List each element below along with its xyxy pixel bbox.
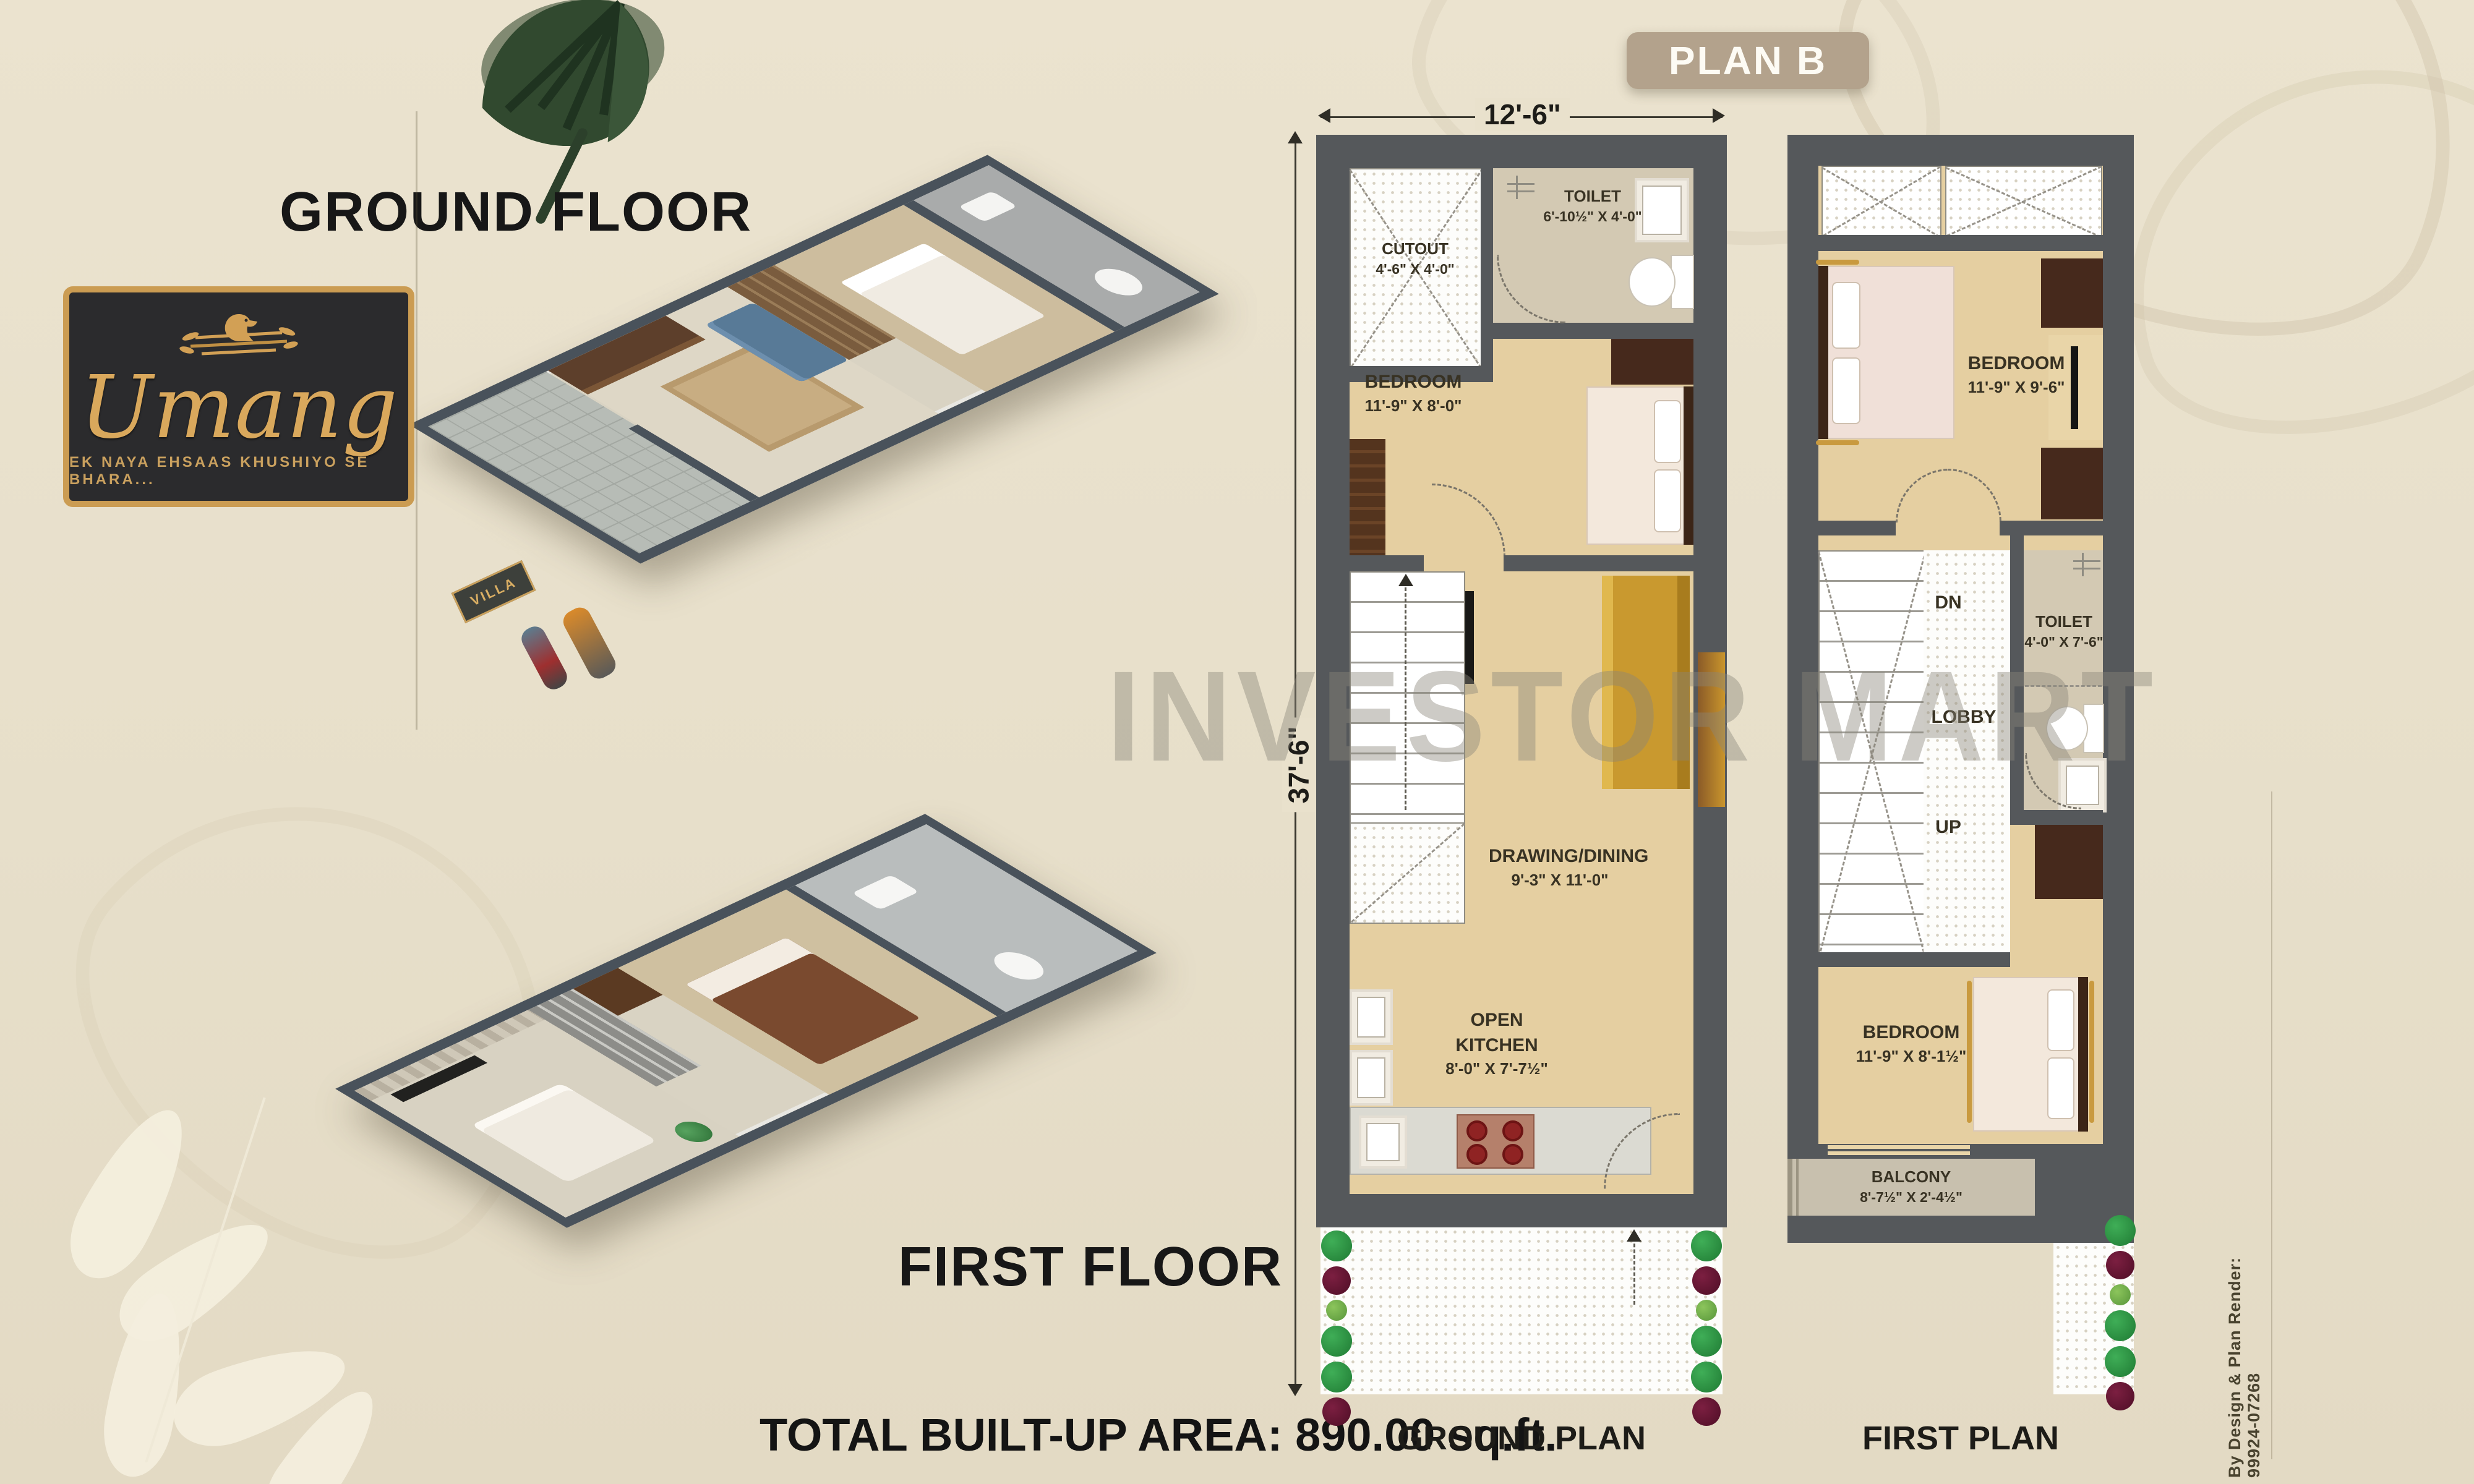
stove-burner: [1466, 1144, 1487, 1165]
plant: [1321, 1230, 1352, 1261]
dimension-arrow: [1318, 108, 1330, 123]
stair-bottom-wall: [1818, 952, 2010, 967]
plant: [2106, 1251, 2134, 1279]
room-dim: 4'-0" X 7'-6": [2018, 633, 2110, 652]
plant: [2106, 1382, 2134, 1410]
plant-row: [1319, 1230, 1354, 1426]
ground-plan-caption: GROUND PLAN: [1316, 1419, 1727, 1457]
bed-pillow: [2047, 1057, 2074, 1119]
partition-wall: [2000, 521, 2103, 535]
bedroom-top-label: BEDROOM 11'-9" X 9'-6": [1948, 351, 2084, 398]
bed-pillow: [1832, 282, 1860, 349]
bedroom-label: BEDROOM 11'-9" X 8'-0": [1345, 370, 1481, 417]
brochure-canvas: GROUND FLOOR Umang EK NAYA EHSAAS KHUSHI…: [0, 0, 2474, 1484]
scooter-red: [518, 623, 571, 693]
bed-side-rail: [1816, 260, 1859, 265]
toilet-wc-bowl: [2046, 706, 2088, 751]
hatch-line: [1820, 550, 1927, 952]
terrace-open-panel: [1821, 166, 1941, 237]
dimension-arrow: [1288, 131, 1303, 143]
terrace-wall: [1818, 235, 2103, 251]
lobby-toilet-wall: [2010, 535, 2024, 810]
designer-credit: By Design & Plan Render: 99924-07268: [2225, 1212, 2264, 1478]
villa-sign-text: VILLA: [468, 574, 519, 610]
forecourt-paving: [1320, 1227, 1723, 1394]
bed-headboard: [1818, 266, 1828, 439]
first-floor-label: FIRST FLOOR: [898, 1235, 1283, 1299]
toilet-partition-dashed: [2025, 685, 2102, 687]
stem-line-decor: [416, 111, 417, 730]
room-name: BEDROOM: [1345, 370, 1481, 395]
plant: [1696, 1300, 1717, 1321]
tv-panel: [1465, 591, 1474, 684]
room-name: TOILET: [2018, 611, 2110, 633]
front-wall: [1316, 1194, 1599, 1227]
room-dim: 8'-0" X 7'-7½": [1429, 1058, 1565, 1080]
room-name: TOILET: [1531, 185, 1654, 207]
sliding-door-lines: [1828, 1145, 1970, 1158]
hatch-line: [1351, 823, 1465, 923]
first-plan-caption: FIRST PLAN: [1787, 1419, 2134, 1457]
plant: [1691, 1326, 1722, 1357]
shower-symbol: [2082, 553, 2084, 576]
partition-wall: [1350, 555, 1424, 571]
villa-sign: VILLA: [451, 560, 536, 623]
lobby-label: LOBBY: [1920, 705, 2007, 730]
staircase: [1350, 571, 1465, 825]
entry-arrow: [1633, 1238, 1635, 1305]
room-dim: 11'-9" X 8'-1½": [1843, 1046, 1979, 1067]
plant-row: [2103, 1215, 2138, 1410]
bed: [1818, 266, 1954, 439]
room-dim: 11'-9" X 8'-0": [1345, 395, 1481, 417]
ground-plan: 12'-6" 37'-6" TOILET 6'-10½" X 4'-0": [1290, 93, 1760, 1484]
ground-floor-label: GROUND FLOOR: [280, 181, 752, 244]
cutout-divider-wall: [1481, 168, 1493, 366]
bedroom-bottom-label: BEDROOM 11'-9" X 8'-1½": [1843, 1020, 1979, 1067]
stove-burner: [1466, 1120, 1487, 1141]
dimension-height-label: 37'-6": [1282, 718, 1315, 812]
bed-headboard: [1684, 386, 1693, 545]
room-dim: 9'-3" X 11'-0": [1489, 869, 1631, 891]
room-name: OPEN KITCHEN: [1429, 1008, 1565, 1058]
toilet-label: TOILET 6'-10½" X 4'-0": [1531, 185, 1654, 226]
kitchen-stove: [1457, 1114, 1534, 1169]
terrace-open-panel: [1945, 166, 2102, 237]
room-dim: 6'-10½" X 4'-0": [1531, 207, 1654, 226]
lobby-text: LOBBY: [1920, 705, 2007, 730]
partition-wall: [1504, 555, 1693, 571]
room-name: CUTOUT: [1350, 238, 1481, 260]
plant: [1322, 1266, 1351, 1295]
scooter-orange: [560, 603, 620, 683]
bed-headboard: [2078, 977, 2088, 1132]
stair-dn-text: DN: [1917, 591, 1979, 616]
bed-side-rail: [1816, 440, 1859, 445]
wardrobe: [2041, 448, 2103, 519]
balcony-bottom-wall: [1787, 1216, 2053, 1243]
plant: [2110, 1284, 2131, 1305]
kitchen-appliance: [1350, 989, 1393, 1045]
plant: [2105, 1346, 2136, 1377]
room-dim: 11'-9" X 9'-6": [1948, 377, 2084, 398]
cutout-label: CUTOUT 4'-6" X 4'-0": [1350, 238, 1481, 279]
bird-nest-icon: [177, 305, 301, 362]
wardrobe: [1611, 339, 1693, 385]
wardrobe: [2041, 258, 2103, 328]
shower-symbol: [2073, 568, 2100, 569]
plan-b-badge: PLAN B: [1627, 32, 1869, 89]
bed: [1973, 977, 2088, 1132]
plant-row: [1689, 1230, 1724, 1426]
room-name: BALCONY: [1843, 1166, 1979, 1188]
bed-side-rail: [2089, 981, 2094, 1123]
logo-wordmark: Umang: [80, 365, 398, 451]
stove-burner: [1502, 1144, 1523, 1165]
dimension-width-label: 12'-6": [1475, 98, 1570, 131]
room-name: BEDROOM: [1843, 1020, 1979, 1046]
stair-up-text: UP: [1917, 815, 1979, 840]
dimension-arrow: [1288, 1384, 1303, 1396]
first-plan: BEDROOM 11'-9" X 9'-6" DN LOBBY UP TOILE…: [1769, 93, 2202, 1484]
shower-symbol: [2073, 560, 2100, 562]
partition-wall: [1818, 521, 1896, 535]
room-name: BEDROOM: [1948, 351, 2084, 377]
plant: [1321, 1362, 1352, 1392]
drawing-dining-label: DRAWING/DINING 9'-3" X 11'-0": [1489, 844, 1631, 891]
bed-pillow: [1654, 400, 1681, 463]
dimension-arrow: [1713, 108, 1725, 123]
open-kitchen-label: OPEN KITCHEN 8'-0" X 7'-7½": [1429, 1008, 1565, 1080]
stair-landing: [1350, 822, 1465, 924]
plant: [1691, 1230, 1722, 1261]
dn-label: DN: [1917, 591, 1979, 616]
entry-arrow-head: [1627, 1229, 1641, 1242]
plant: [1692, 1266, 1721, 1295]
toilet-wall: [1493, 323, 1693, 339]
plant: [2105, 1215, 2136, 1246]
page-rule: [2271, 791, 2272, 1459]
bed-pillow: [1654, 469, 1681, 532]
sofa: [1602, 576, 1690, 789]
room-dim: 4'-6" X 4'-0": [1350, 260, 1481, 279]
room-dim: 8'-7½" X 2'-4½": [1843, 1188, 1979, 1207]
wardrobe: [2035, 825, 2103, 899]
stair-arrow-head: [1398, 574, 1413, 586]
logo-tagline: EK NAYA EHSAAS KHUSHIYO SE BHARA...: [69, 454, 408, 488]
shower-symbol: [1507, 183, 1534, 185]
shower-symbol: [1516, 176, 1518, 199]
toilet-wc-bowl: [1629, 257, 1676, 307]
plant: [1321, 1326, 1352, 1357]
bed: [1586, 386, 1693, 545]
up-label: UP: [1917, 815, 1979, 840]
toilet-label: TOILET 4'-0" X 7'-6": [2018, 611, 2110, 652]
plant: [1326, 1300, 1347, 1321]
staircase: [1818, 550, 1926, 955]
toilet-bottom-wall: [2010, 810, 2103, 825]
stove-burner: [1502, 1120, 1523, 1141]
bed-pillow: [2047, 989, 2074, 1051]
front-wall: [1667, 1194, 1727, 1227]
bed-pillow: [1832, 357, 1860, 424]
kitchen-sink: [1359, 1115, 1407, 1169]
umang-logo: Umang EK NAYA EHSAAS KHUSHIYO SE BHARA..…: [63, 286, 414, 507]
plant: [2105, 1310, 2136, 1341]
plant: [1691, 1362, 1722, 1392]
stair-direction-arrow: [1405, 587, 1406, 810]
kitchen-appliance: [1350, 1050, 1393, 1106]
main-door-panel: [1698, 652, 1725, 807]
balcony-label: BALCONY 8'-7½" X 2'-4½": [1843, 1166, 1979, 1207]
room-name: DRAWING/DINING: [1489, 844, 1631, 869]
